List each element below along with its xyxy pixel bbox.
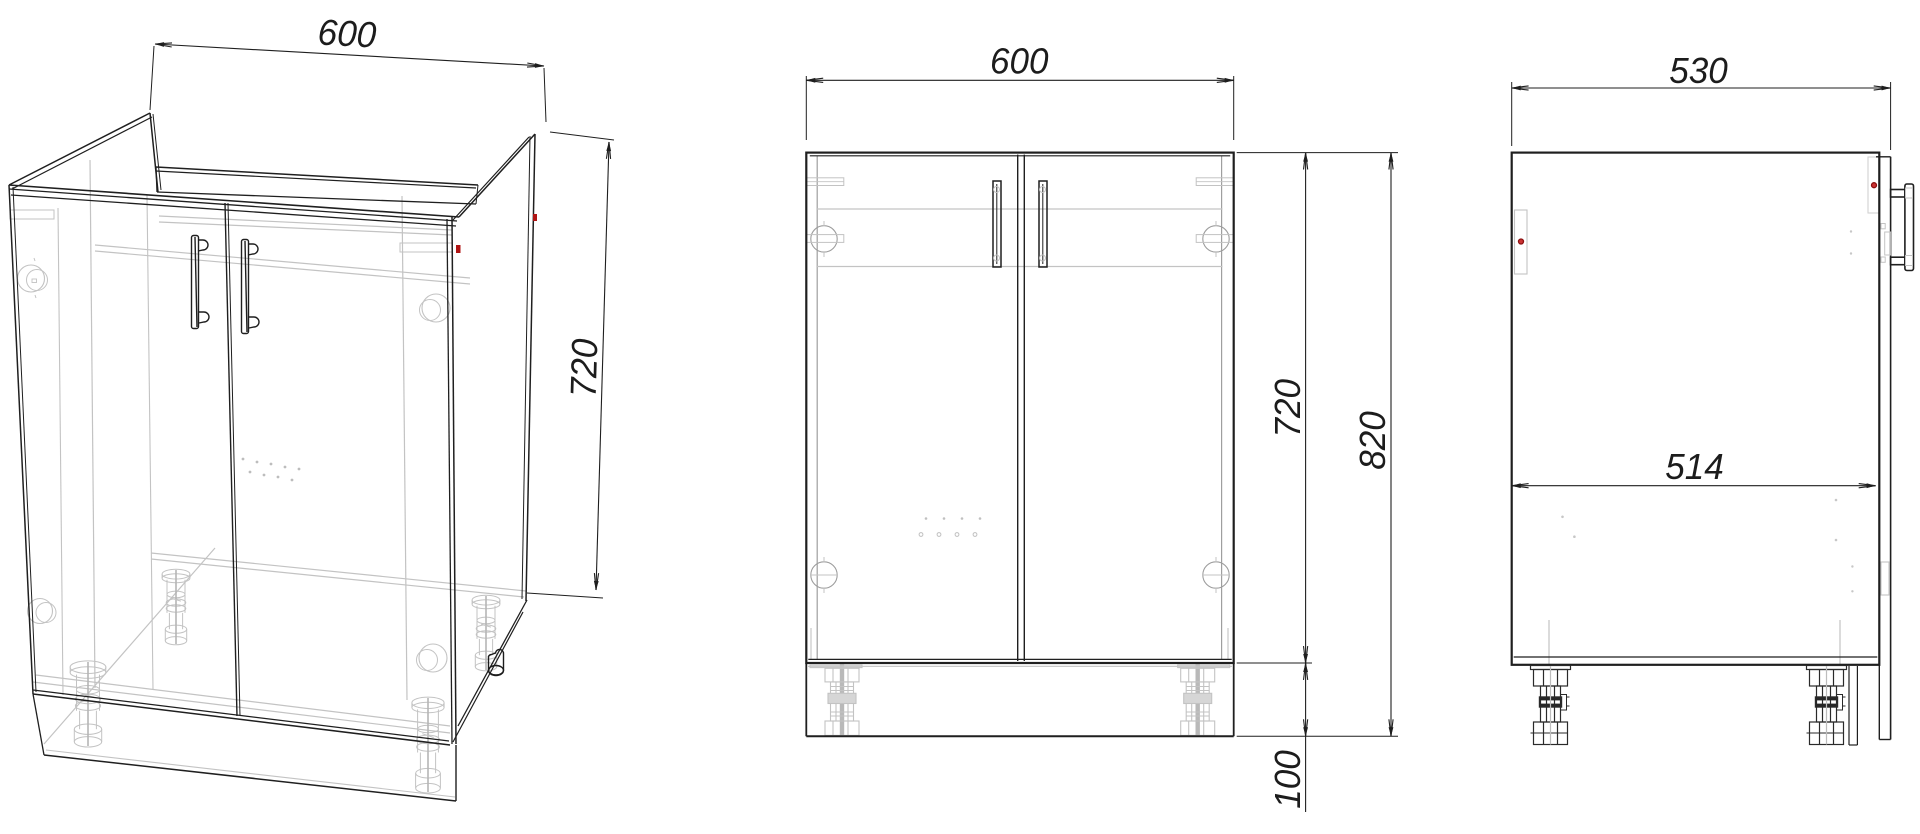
svg-text:600: 600 [317, 11, 378, 55]
svg-text:514: 514 [1665, 446, 1724, 487]
svg-text:100: 100 [1267, 750, 1308, 809]
svg-text:720: 720 [1267, 379, 1308, 438]
svg-text:600: 600 [990, 40, 1048, 81]
svg-text:820: 820 [1352, 411, 1393, 470]
svg-text:720: 720 [563, 338, 606, 398]
svg-text:530: 530 [1669, 50, 1728, 91]
